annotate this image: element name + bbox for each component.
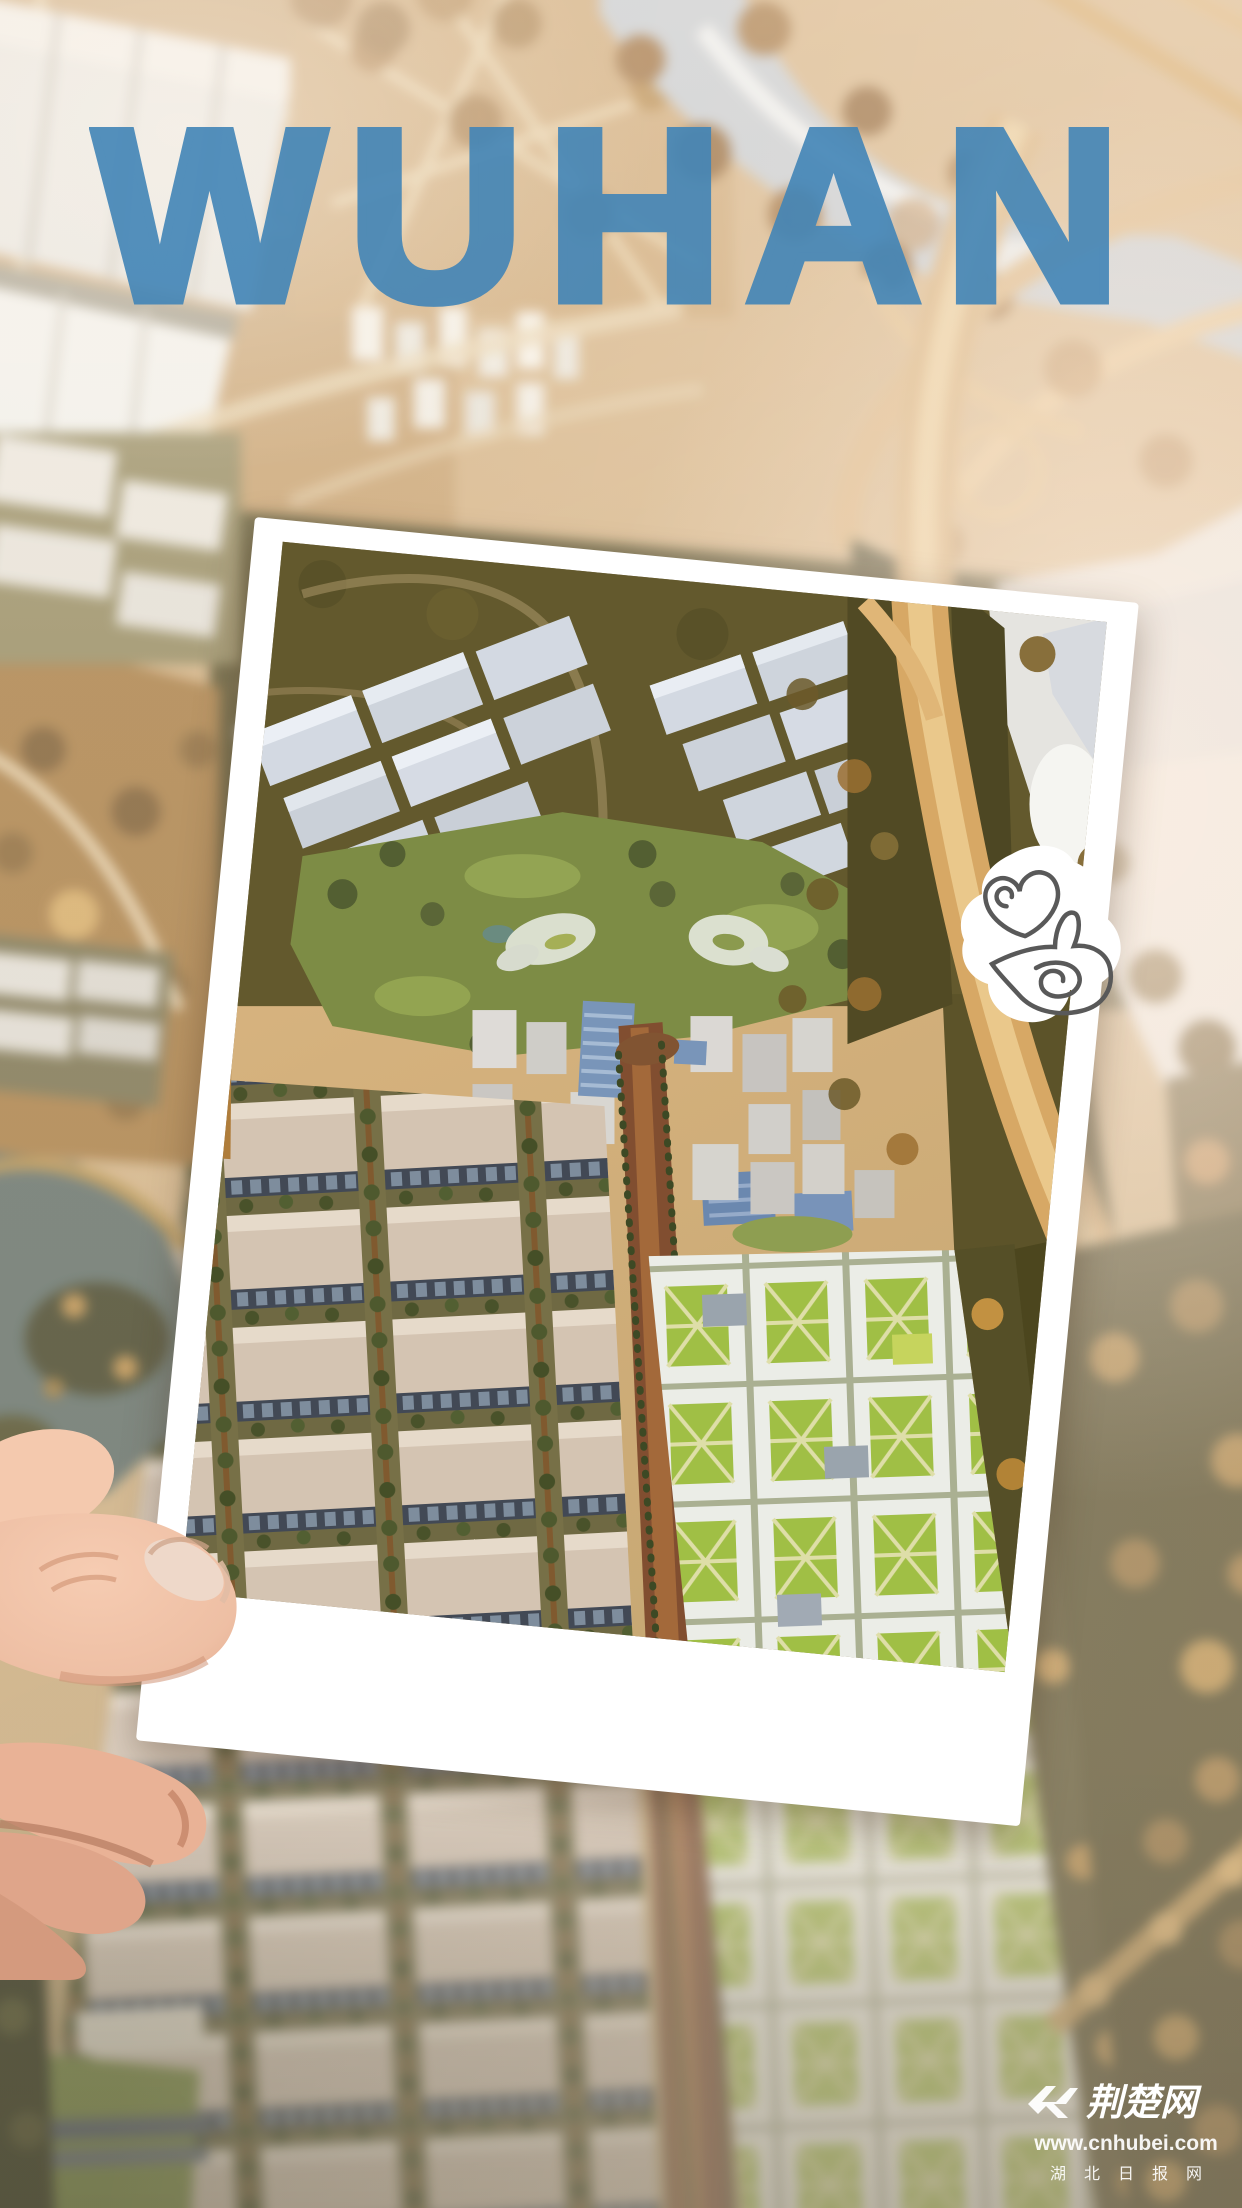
svg-text:荆楚网: 荆楚网 <box>1086 2083 1202 2124</box>
